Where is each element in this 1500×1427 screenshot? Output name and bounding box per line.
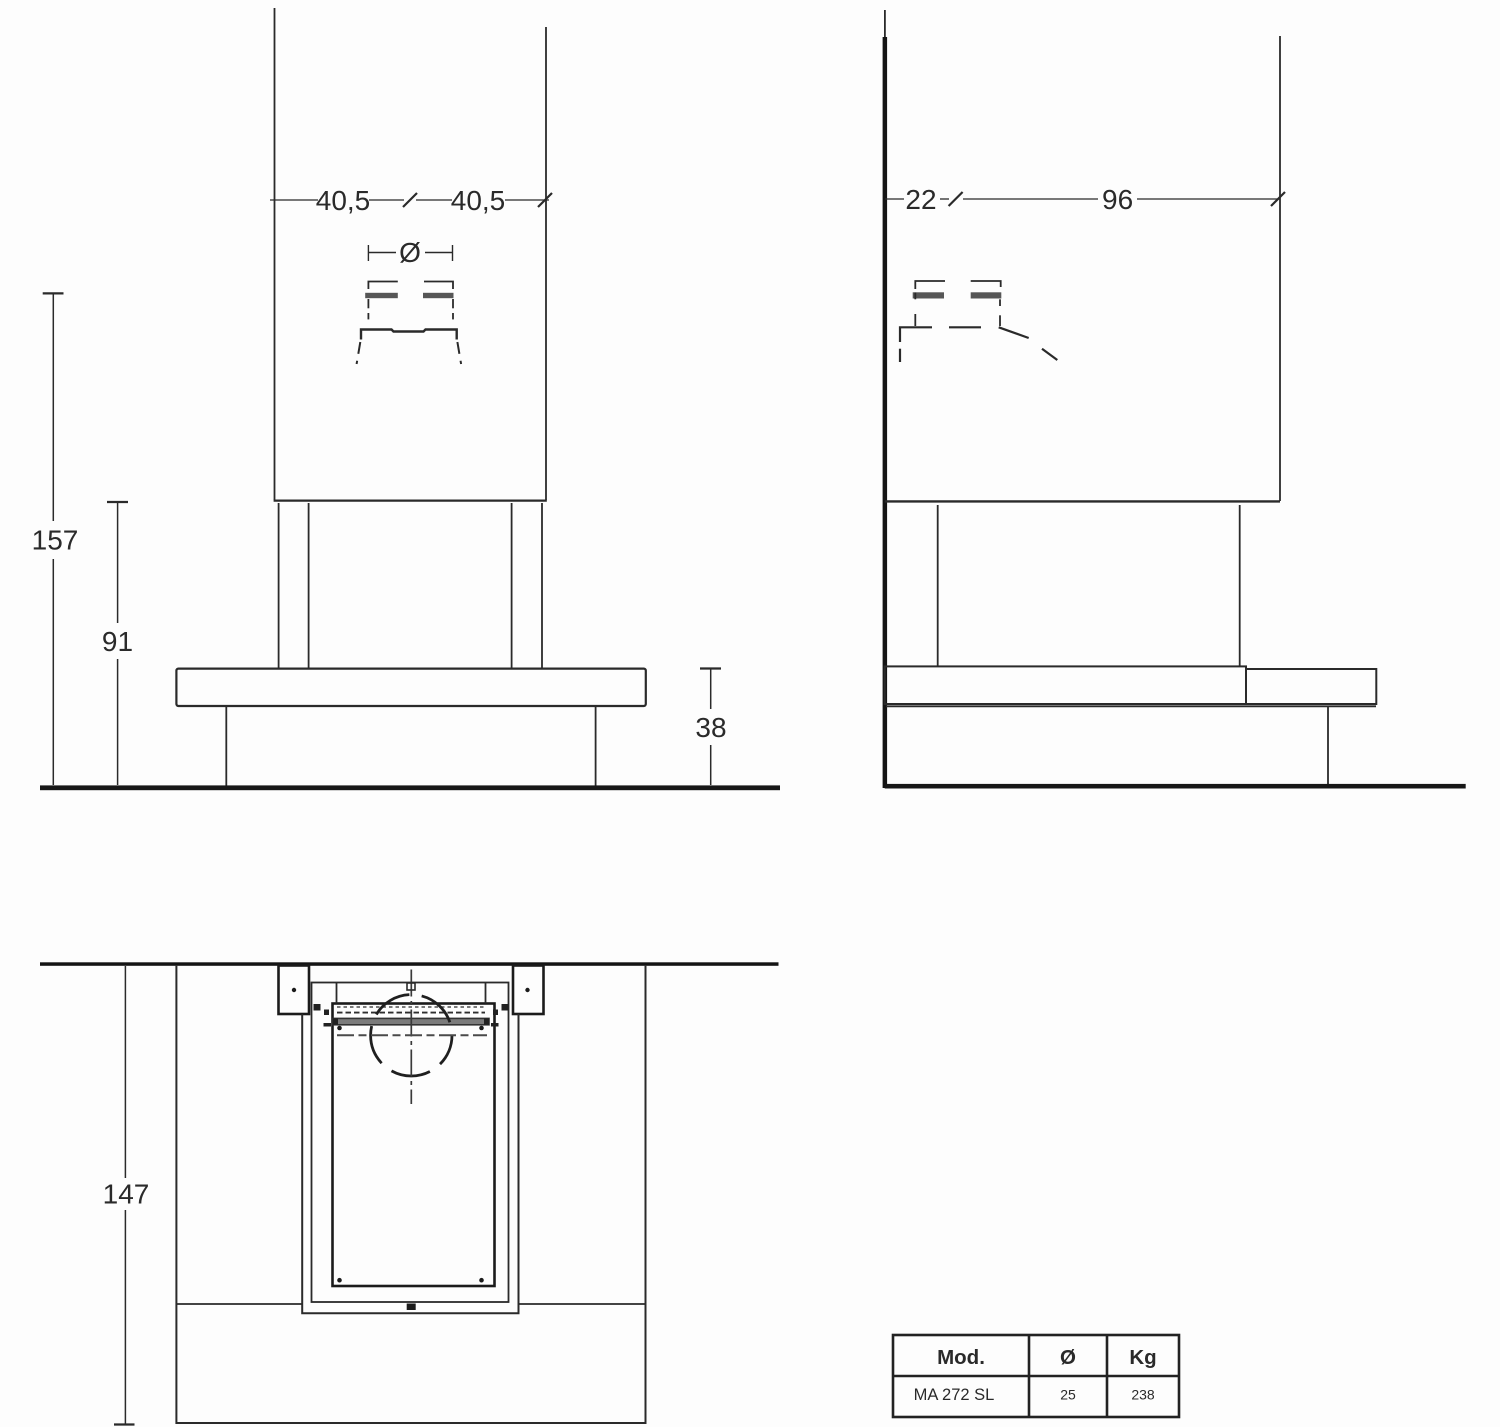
svg-text:22: 22 [905, 184, 936, 215]
svg-text:Ø: Ø [1060, 1346, 1076, 1369]
svg-text:MA 272 SL: MA 272 SL [914, 1386, 995, 1404]
svg-text:96: 96 [1102, 184, 1133, 215]
svg-text:157: 157 [32, 525, 79, 556]
svg-text:40,5: 40,5 [451, 185, 506, 216]
svg-text:147: 147 [103, 1179, 150, 1210]
svg-text:238: 238 [1131, 1387, 1155, 1403]
svg-text:Mod.: Mod. [937, 1346, 985, 1369]
svg-text:Ø: Ø [399, 237, 421, 268]
svg-text:38: 38 [695, 712, 726, 743]
svg-text:91: 91 [102, 626, 133, 657]
svg-text:Kg: Kg [1129, 1346, 1156, 1369]
svg-text:40,5: 40,5 [316, 185, 371, 216]
svg-text:25: 25 [1060, 1387, 1076, 1403]
